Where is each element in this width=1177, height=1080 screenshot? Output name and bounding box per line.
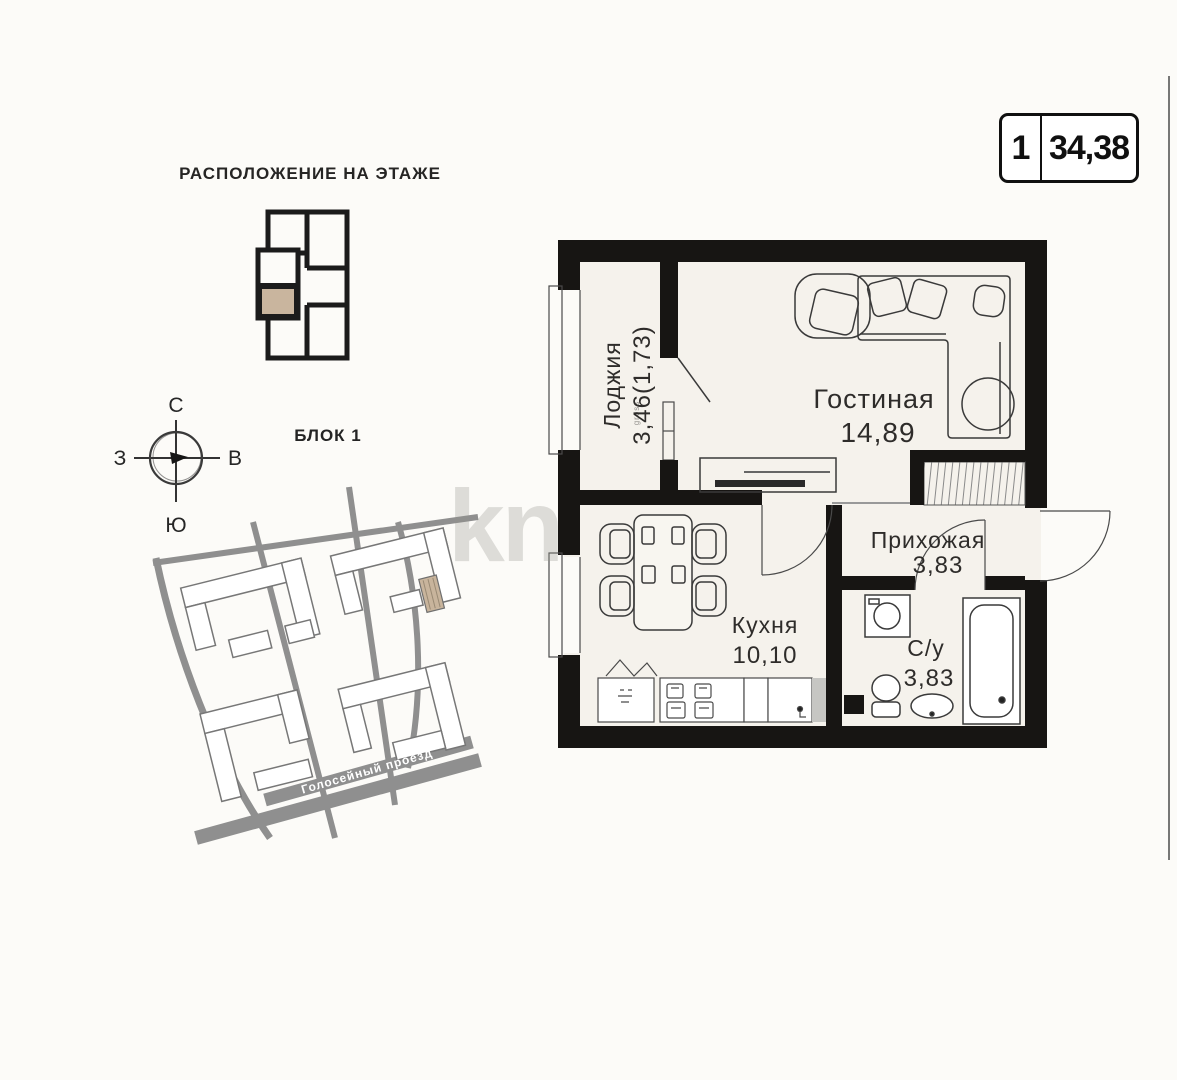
apartment-plan: Лоджия 3,46(1,73) gross Гостиная 14,89 П… [544, 238, 1124, 752]
living-room-area: 14,89 [840, 417, 915, 448]
bathroom-area: 3,83 [904, 665, 955, 692]
building-block-ne [330, 528, 460, 626]
loggia-area: 3,46(1,73) [629, 325, 656, 444]
compass-west: З [114, 447, 127, 470]
tv [715, 480, 805, 487]
kitchen-area: 10,10 [732, 642, 797, 669]
hallway-name: Прихожая [871, 527, 986, 553]
dining-table [634, 515, 692, 630]
living-room-name: Гостиная [813, 384, 934, 414]
toilet [872, 675, 900, 717]
compass-east: В [228, 447, 242, 470]
building-block-nw [181, 558, 321, 666]
floor-locator-title: РАСПОЛОЖЕНИЕ НА ЭТАЖЕ [150, 164, 470, 184]
site-map: Голосейный проезд [140, 470, 490, 850]
area-badge: 1 34,38 [999, 113, 1139, 183]
page-edge-line [1168, 76, 1170, 860]
loggia-note: gross [632, 401, 641, 426]
floorplan-page: 1 34,38 РАСПОЛОЖЕНИЕ НА ЭТАЖЕ С Ю З В БЛ… [0, 0, 1177, 1080]
wardrobe [910, 450, 1025, 505]
loggia-window [549, 286, 580, 454]
entrance-door [1040, 511, 1110, 581]
washing-machine [865, 595, 910, 637]
watermark: kn [448, 468, 561, 585]
compass-needle [170, 452, 188, 464]
kitchen-name: Кухня [732, 612, 799, 638]
bathroom-sink [911, 694, 953, 718]
stove [660, 678, 744, 722]
hallway-area: 3,83 [913, 552, 964, 579]
block-label: БЛОК 1 [268, 426, 388, 446]
plumbing-chase [844, 695, 864, 714]
bathtub [963, 598, 1020, 724]
highlighted-unit [260, 287, 296, 316]
rooms-count: 1 [1002, 129, 1040, 168]
drainboard [812, 678, 826, 722]
counter-segment [744, 678, 768, 722]
floor-locator-diagram [238, 206, 388, 368]
compass-north: С [168, 394, 183, 417]
loggia-name: Лоджия [599, 341, 625, 429]
bathroom-name: С/у [907, 635, 945, 661]
kitchen-sink [768, 678, 812, 722]
total-area: 34,38 [1042, 129, 1136, 168]
